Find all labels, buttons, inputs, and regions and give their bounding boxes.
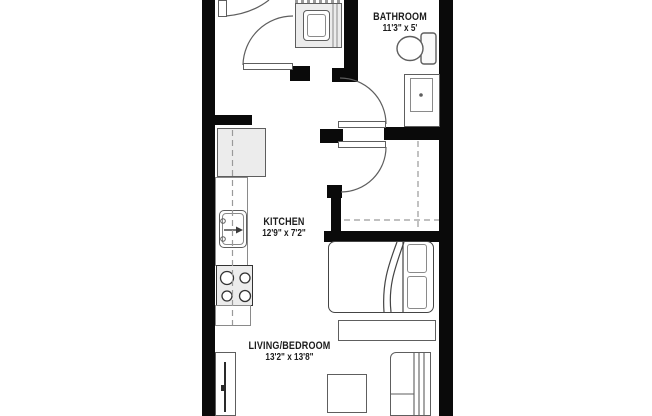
entry-bottom-wall (215, 115, 252, 125)
closet-door-swing-arc (341, 147, 386, 192)
kitchen-counter-lower (215, 305, 251, 326)
bathroom-dimensions: 11'3" x 5' (361, 23, 440, 34)
bathroom-name: BATHROOM (361, 11, 440, 23)
entry-door-stub-wall (290, 66, 310, 81)
tv-bracket (221, 385, 224, 391)
living-bedroom-label: LIVING/BEDROOM 13'2" x 13'8" (238, 340, 341, 364)
bathroom-door-leaf (338, 121, 386, 128)
floor-plan: BATHROOM 11'3" x 5' KITCHEN 12'9" x 7'2"… (0, 0, 652, 416)
stove (216, 265, 253, 306)
bathroom-bottom-wall (384, 127, 439, 140)
entry-bathroom-divider-wall (344, 0, 358, 70)
divider-wall-foot (332, 68, 358, 82)
right-exterior-wall (439, 0, 453, 416)
closet-door-leaf (338, 141, 386, 148)
toilet-bowl (397, 37, 423, 61)
refrigerator (217, 128, 266, 177)
washer-door-inner (307, 14, 326, 37)
living-bedroom-name: LIVING/BEDROOM (238, 340, 341, 352)
kitchen-label: KITCHEN 12'9" x 7'2" (250, 216, 317, 240)
kitchen-dimensions: 12'9" x 7'2" (250, 228, 317, 239)
hall-door-leaf (243, 63, 293, 70)
closet-left-wall (331, 196, 341, 234)
pillow-top (407, 244, 427, 273)
kitchen-name: KITCHEN (250, 216, 317, 228)
kitchen-sink-basin (222, 213, 244, 245)
left-exterior-wall (202, 0, 215, 416)
toilet-tank (421, 33, 436, 64)
pillow-bottom (407, 276, 427, 309)
bathroom-label: BATHROOM 11'3" x 5' (361, 11, 440, 35)
vanity-sink-basin (410, 78, 433, 112)
entry-door-swing-arc (226, 0, 269, 16)
sofa (390, 352, 431, 416)
hall-door-swing-arc (243, 16, 293, 65)
tv-screen (224, 362, 226, 412)
bench (338, 320, 436, 341)
living-bedroom-dimensions: 13'2" x 13'8" (238, 352, 341, 363)
bathroom-door-swing-arc (340, 78, 386, 124)
entry-door-leaf (218, 0, 227, 17)
coffee-table (327, 374, 367, 413)
